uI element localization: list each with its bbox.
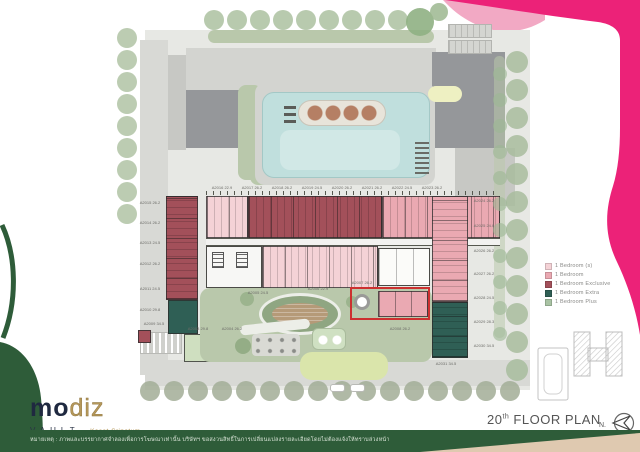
tree-icon	[500, 381, 520, 401]
tree-icon	[493, 171, 507, 185]
tree-icon	[493, 67, 507, 81]
tree-icon	[493, 93, 507, 107]
tree-icon	[296, 10, 316, 30]
tree-icon	[493, 119, 507, 133]
tree-icon	[506, 79, 528, 101]
tree-icon	[284, 381, 304, 401]
tree-icon	[388, 10, 408, 30]
tree-icon	[493, 145, 507, 159]
tree-icon	[308, 381, 328, 401]
tree-icon	[428, 381, 448, 401]
tree-icon	[506, 107, 528, 129]
tree-icon	[493, 327, 507, 341]
tree-icon	[506, 163, 528, 185]
tree-icon	[506, 247, 528, 269]
tree-icon	[236, 381, 256, 401]
tree-icon	[188, 381, 208, 401]
tree-icon	[506, 191, 528, 213]
tree-icon	[476, 381, 496, 401]
trees-layer	[0, 0, 640, 452]
tree-icon	[117, 204, 137, 224]
tree-icon	[117, 28, 137, 48]
tree-icon	[273, 10, 293, 30]
tree-icon	[204, 10, 224, 30]
tree-icon	[117, 116, 137, 136]
floorplan-poster: หมายเหตุ : ภาพและบรรยากาศจำลองเพื่อการโฆ…	[0, 0, 640, 452]
tree-icon	[452, 381, 472, 401]
tree-icon	[117, 138, 137, 158]
tree-icon	[493, 275, 507, 289]
tree-icon	[212, 381, 232, 401]
tree-icon	[140, 381, 160, 401]
tree-icon	[342, 10, 362, 30]
south-lawn	[300, 352, 388, 380]
tree-icon	[430, 3, 448, 21]
highlight-box	[350, 287, 430, 320]
tree-icon	[404, 381, 424, 401]
tree-icon	[506, 275, 528, 297]
tree-icon	[506, 219, 528, 241]
tree-icon	[506, 51, 528, 73]
disclaimer-text: หมายเหตุ : ภาพและบรรยากาศจำลองเพื่อการโฆ…	[30, 436, 390, 444]
tree-icon	[117, 94, 137, 114]
tree-icon	[117, 182, 137, 202]
tree-icon	[117, 50, 137, 70]
tree-icon	[506, 331, 528, 353]
tree-icon	[493, 301, 507, 315]
tree-icon	[164, 381, 184, 401]
tree-icon	[506, 135, 528, 157]
tree-icon	[506, 359, 528, 381]
tree-icon	[493, 197, 507, 211]
tree-icon	[117, 72, 137, 92]
tree-icon	[380, 381, 400, 401]
tree-icon	[365, 10, 385, 30]
tree-icon	[319, 10, 339, 30]
vehicle-1	[330, 384, 345, 392]
tree-icon	[250, 10, 270, 30]
tree-icon	[227, 10, 247, 30]
tree-icon	[260, 381, 280, 401]
vehicle-2	[350, 384, 365, 392]
tree-icon	[493, 249, 507, 263]
tree-icon	[506, 303, 528, 325]
tree-icon	[117, 160, 137, 180]
tree-icon	[493, 223, 507, 237]
